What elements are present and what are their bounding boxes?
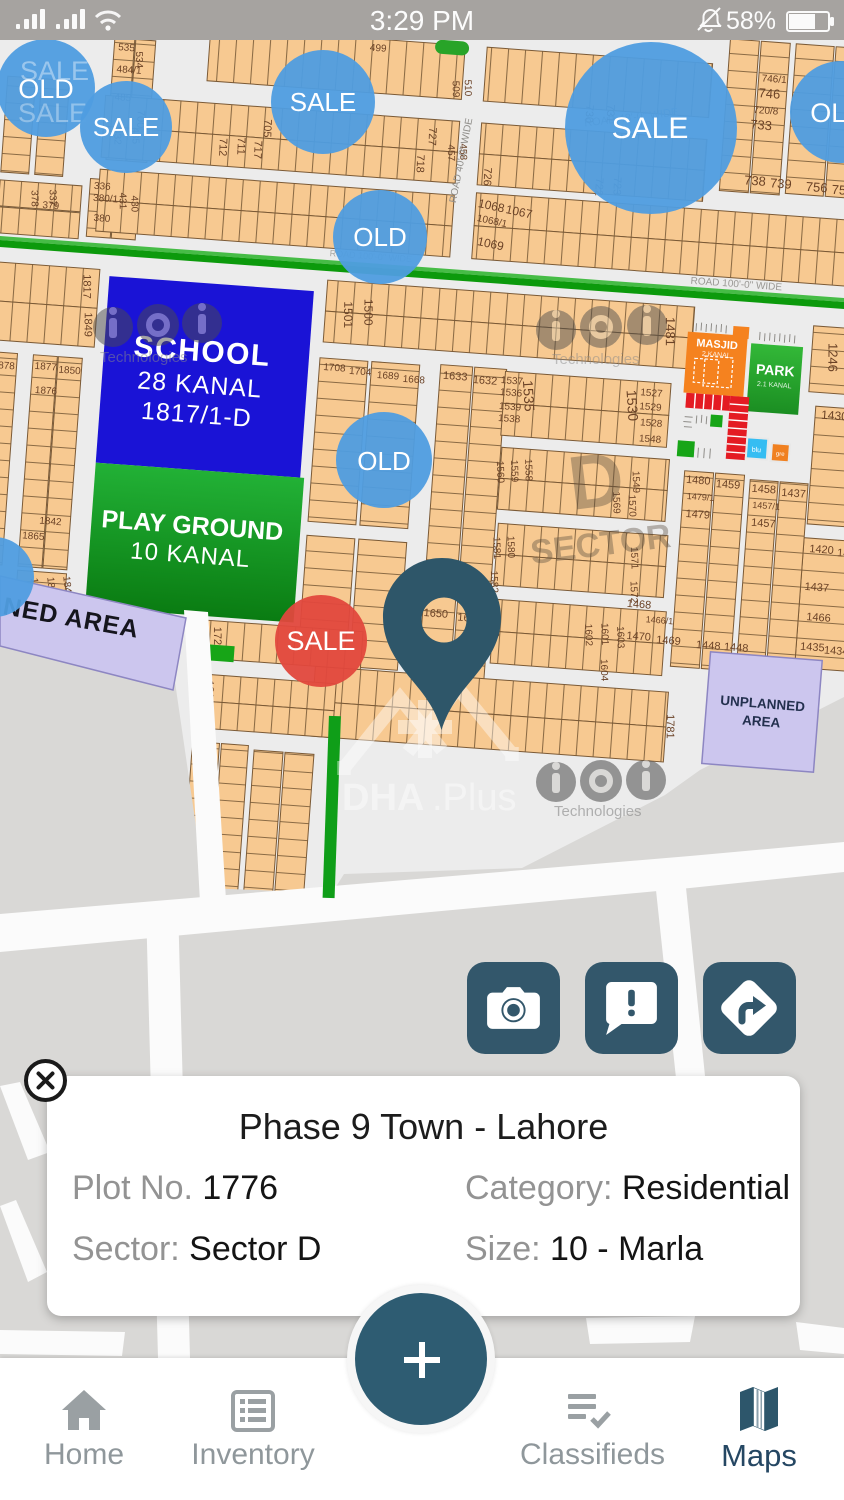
svg-text:509: 509 xyxy=(450,81,461,98)
svg-text:1876: 1876 xyxy=(34,385,57,398)
svg-text:1479: 1479 xyxy=(685,508,710,522)
svg-text:blu: blu xyxy=(751,447,761,455)
svg-text:1527: 1527 xyxy=(640,387,663,400)
svg-text:380/1: 380/1 xyxy=(93,193,119,206)
svg-text:757: 757 xyxy=(831,182,844,199)
svg-text:733: 733 xyxy=(750,117,773,134)
svg-text:SALE: SALE xyxy=(286,626,355,656)
svg-text:1632: 1632 xyxy=(472,374,497,388)
svg-text:1457/1: 1457/1 xyxy=(752,500,780,512)
svg-text:D: D xyxy=(564,436,629,527)
svg-text:1529: 1529 xyxy=(639,401,662,414)
svg-text:727: 727 xyxy=(425,127,438,146)
svg-text:718: 718 xyxy=(413,154,426,173)
svg-text:1501: 1501 xyxy=(341,301,355,328)
svg-text:1466: 1466 xyxy=(806,611,831,625)
svg-text:378: 378 xyxy=(29,190,40,207)
svg-text:SALE: SALE xyxy=(612,112,689,145)
svg-text:AREA: AREA xyxy=(742,712,782,730)
svg-text:720/8: 720/8 xyxy=(753,105,779,118)
svg-text:1548: 1548 xyxy=(639,433,662,446)
svg-text:SALE: SALE xyxy=(93,112,160,142)
svg-text:1559: 1559 xyxy=(508,460,520,483)
svg-text:.Plus: .Plus xyxy=(432,777,516,819)
svg-text:PARK: PARK xyxy=(755,361,795,380)
svg-text:1580: 1580 xyxy=(504,536,516,559)
svg-text:712: 712 xyxy=(216,138,229,157)
svg-text:1500: 1500 xyxy=(361,299,375,326)
svg-text:1581: 1581 xyxy=(490,537,502,560)
svg-text:3:29 PM: 3:29 PM xyxy=(370,5,474,36)
svg-text:1601: 1601 xyxy=(598,623,610,646)
svg-text:756: 756 xyxy=(805,179,828,196)
svg-text:1437: 1437 xyxy=(804,581,829,595)
svg-text:gre: gre xyxy=(776,451,786,458)
svg-text:1469: 1469 xyxy=(656,634,681,648)
svg-text:1817: 1817 xyxy=(80,274,92,299)
svg-text:534: 534 xyxy=(133,51,144,68)
svg-text:1466/1: 1466/1 xyxy=(645,614,673,626)
svg-text:1430: 1430 xyxy=(821,408,844,424)
svg-text:1560: 1560 xyxy=(494,461,506,484)
svg-text:1435: 1435 xyxy=(800,641,825,655)
svg-text:1558: 1558 xyxy=(522,459,534,482)
svg-text:SALE: SALE xyxy=(290,87,357,117)
svg-text:1781: 1781 xyxy=(664,714,676,739)
svg-text:SALE: SALE xyxy=(18,98,87,128)
svg-text:DHA: DHA xyxy=(342,777,424,819)
svg-text:1448: 1448 xyxy=(696,639,721,653)
svg-text:1535: 1535 xyxy=(520,380,538,412)
svg-text:1480: 1480 xyxy=(686,474,711,488)
svg-text:431: 431 xyxy=(117,193,128,210)
svg-text:Technologies: Technologies xyxy=(100,349,188,366)
svg-text:OLD: OLD xyxy=(810,98,844,128)
svg-text:1849: 1849 xyxy=(82,312,94,337)
svg-text:726: 726 xyxy=(481,167,494,186)
svg-text:1470: 1470 xyxy=(626,630,651,644)
svg-text:738: 738 xyxy=(744,172,767,189)
svg-text:499: 499 xyxy=(369,43,387,55)
svg-text:717: 717 xyxy=(251,140,264,159)
svg-text:1538: 1538 xyxy=(498,413,521,426)
svg-text:1437: 1437 xyxy=(781,487,806,501)
svg-text:457: 457 xyxy=(445,144,456,161)
svg-text:380: 380 xyxy=(93,213,111,225)
svg-text:OLD: OLD xyxy=(357,446,410,476)
svg-text:1536: 1536 xyxy=(500,387,523,400)
svg-text:1457: 1457 xyxy=(751,517,776,531)
svg-text:1878: 1878 xyxy=(0,360,16,373)
svg-text:1468: 1468 xyxy=(626,598,651,612)
svg-text:1689: 1689 xyxy=(376,370,399,383)
svg-text:1602: 1602 xyxy=(582,624,594,647)
svg-text:1246: 1246 xyxy=(825,343,840,372)
svg-text:1604: 1604 xyxy=(598,659,610,682)
svg-text:1650: 1650 xyxy=(423,607,448,621)
svg-text:705: 705 xyxy=(261,119,274,138)
svg-text:739: 739 xyxy=(769,175,792,192)
svg-text:1539: 1539 xyxy=(499,401,522,414)
svg-text:1708: 1708 xyxy=(323,362,346,375)
svg-text:336: 336 xyxy=(94,181,112,193)
svg-text:1850: 1850 xyxy=(58,365,81,378)
svg-text:1603: 1603 xyxy=(614,626,626,649)
svg-text:1668: 1668 xyxy=(402,374,425,387)
svg-text:Technologies: Technologies xyxy=(554,803,642,820)
svg-text:1528: 1528 xyxy=(640,417,663,430)
svg-text:1458: 1458 xyxy=(751,483,776,497)
svg-text:510: 510 xyxy=(462,80,473,97)
svg-text:Technologies: Technologies xyxy=(552,351,640,368)
svg-text:1865: 1865 xyxy=(22,530,45,543)
svg-text:711: 711 xyxy=(234,137,247,155)
svg-text:1434: 1434 xyxy=(823,644,844,658)
svg-text:379: 379 xyxy=(42,200,60,212)
svg-text:1877: 1877 xyxy=(34,361,57,374)
svg-text:1633: 1633 xyxy=(443,370,468,384)
svg-text:1842: 1842 xyxy=(39,516,62,529)
svg-text:746: 746 xyxy=(758,85,781,102)
svg-text:1549: 1549 xyxy=(630,471,642,494)
svg-text:OLD: OLD xyxy=(353,222,406,252)
svg-text:1459: 1459 xyxy=(715,478,740,492)
svg-text:14: 14 xyxy=(837,547,844,560)
svg-text:746/1: 746/1 xyxy=(761,73,787,86)
svg-text:58%: 58% xyxy=(726,7,776,35)
svg-text:430: 430 xyxy=(128,195,139,212)
svg-text:1704: 1704 xyxy=(349,366,372,379)
svg-text:1479/1: 1479/1 xyxy=(687,491,715,503)
svg-text:1420: 1420 xyxy=(809,543,834,557)
